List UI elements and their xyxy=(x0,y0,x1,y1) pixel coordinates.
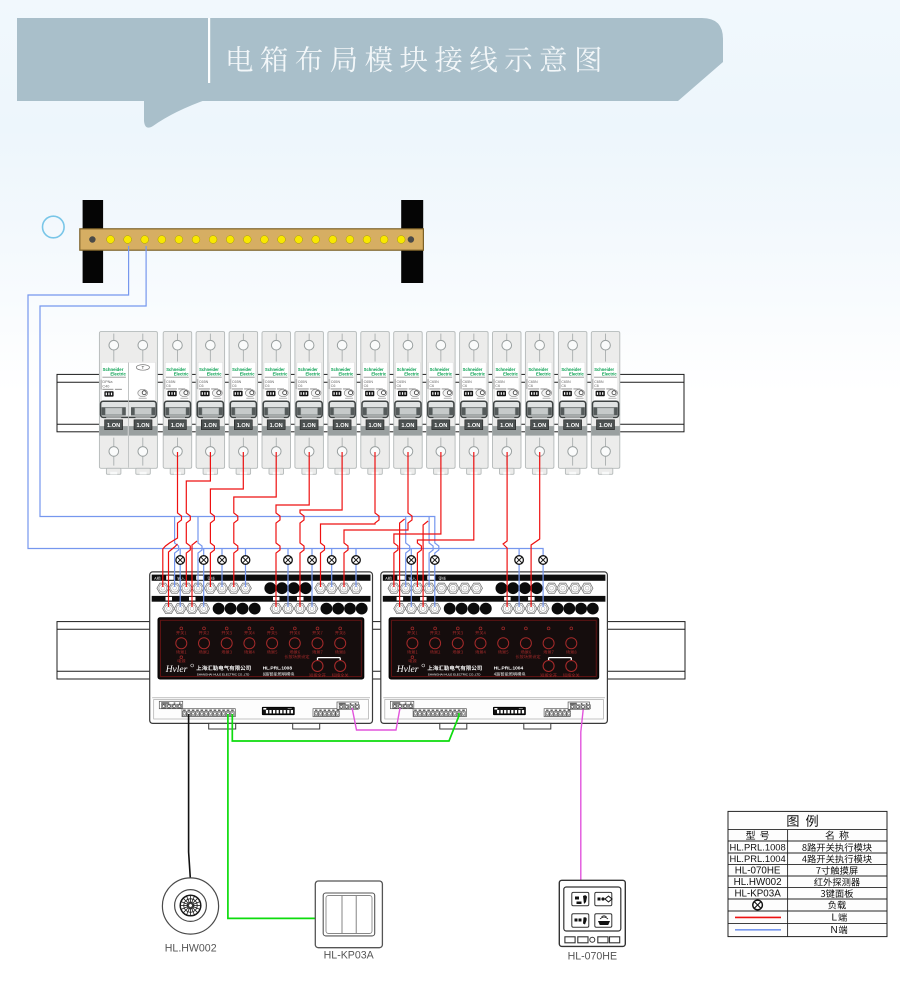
svg-text:HL-KP03A: HL-KP03A xyxy=(324,950,375,962)
svg-text:SHANGHAI HULE ELECTRIC CO.,LTD: SHANGHAI HULE ELECTRIC CO.,LTD xyxy=(428,672,481,676)
svg-text:N: N xyxy=(831,925,838,936)
svg-text:HL.HW002: HL.HW002 xyxy=(734,877,782,888)
svg-text:HL.HW002: HL.HW002 xyxy=(165,943,217,955)
svg-text:HL-070HE: HL-070HE xyxy=(568,951,617,963)
svg-text:HL-070HE: HL-070HE xyxy=(735,866,781,877)
svg-text:HL-KP03A: HL-KP03A xyxy=(734,889,781,900)
svg-text:HL.PRL.1004: HL.PRL.1004 xyxy=(494,666,524,672)
svg-text:HL.PRL.1004: HL.PRL.1004 xyxy=(729,853,785,864)
svg-text:Hvler: Hvler xyxy=(396,665,419,675)
svg-text:Hvler: Hvler xyxy=(165,665,188,675)
svg-text:SHANGHAI HULE ELECTRIC CO.,LTD: SHANGHAI HULE ELECTRIC CO.,LTD xyxy=(197,672,250,676)
svg-text:HL.PRL.1008: HL.PRL.1008 xyxy=(729,842,785,853)
svg-text:L: L xyxy=(832,913,838,924)
svg-text:HL.PRL.1008: HL.PRL.1008 xyxy=(263,666,293,672)
